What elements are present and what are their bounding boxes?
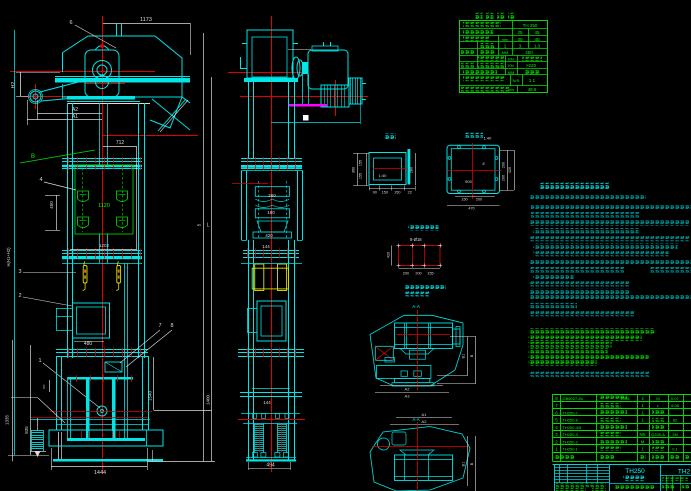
svg-text:GB8027-84: GB8027-84 (563, 396, 584, 401)
svg-text:9.08: 9.08 (671, 403, 680, 408)
svg-text:4: 4 (39, 177, 42, 183)
svg-text:B: B (31, 154, 35, 160)
svg-text:260: 260 (268, 193, 276, 198)
svg-text:NN: NN (639, 432, 645, 437)
svg-text:TH250.3: TH250.3 (563, 432, 579, 437)
svg-text:200: 200 (415, 272, 421, 276)
svg-text:A3: A3 (405, 393, 411, 398)
svg-text:8: 8 (482, 162, 484, 166)
svg-text:1.1: 1.1 (529, 78, 536, 83)
svg-text:TH250.2: TH250.2 (563, 439, 579, 444)
svg-text:1400: 1400 (205, 394, 210, 405)
svg-text:200: 200 (502, 162, 506, 168)
svg-text:180: 180 (267, 210, 275, 215)
svg-text:280: 280 (410, 167, 414, 173)
svg-text:M: M (656, 396, 659, 401)
svg-text:150: 150 (461, 198, 467, 202)
svg-text:470: 470 (468, 207, 474, 211)
svg-text:8-Ø18: 8-Ø18 (410, 237, 422, 242)
svg-text:H2: H2 (11, 82, 17, 89)
svg-text:6: 6 (69, 20, 72, 26)
svg-text:45: 45 (534, 30, 540, 35)
svg-text:420: 420 (508, 167, 512, 173)
svg-text:200: 200 (403, 272, 409, 276)
svg-text:B1: B1 (462, 354, 466, 359)
svg-text:A2: A2 (72, 107, 78, 113)
svg-text:TH250.6: TH250.6 (563, 418, 579, 423)
svg-text:1:40: 1:40 (379, 173, 388, 178)
svg-text:1173: 1173 (140, 17, 152, 23)
svg-text:MM: MM (502, 50, 509, 55)
svg-text:A1: A1 (422, 412, 428, 417)
svg-text:22: 22 (408, 191, 412, 195)
svg-text:144: 144 (263, 400, 271, 405)
svg-text:N/S: N/S (513, 78, 520, 83)
svg-text:L: L (207, 223, 210, 229)
svg-text:TH250: TH250 (625, 468, 645, 475)
svg-text:2M: 2M (672, 432, 678, 437)
svg-text:B: B (470, 354, 474, 357)
svg-text:1444: 1444 (94, 470, 106, 476)
svg-text:TH 250: TH 250 (523, 23, 538, 28)
svg-text:835: 835 (24, 426, 29, 434)
svg-text:40: 40 (534, 37, 540, 42)
svg-text:7: 7 (158, 323, 161, 329)
svg-text:900: 900 (465, 179, 472, 184)
svg-text:25: 25 (517, 30, 523, 35)
svg-text:A1: A1 (72, 114, 78, 120)
svg-text:1202: 1202 (99, 243, 110, 248)
svg-text:8: 8 (170, 323, 173, 329)
svg-text:MM: MM (508, 70, 515, 75)
svg-text:450: 450 (49, 201, 54, 209)
svg-text:TH2: TH2 (678, 469, 691, 476)
svg-text:m/s: m/s (508, 87, 514, 92)
svg-text:200: 200 (502, 175, 506, 181)
svg-text:B: B (470, 462, 474, 465)
svg-text:1335: 1335 (5, 414, 10, 425)
svg-text:2: 2 (18, 293, 21, 299)
svg-text:48.5: 48.5 (528, 87, 537, 92)
svg-text:1.3: 1.3 (534, 43, 541, 48)
svg-text:82: 82 (673, 418, 678, 423)
svg-text:1540: 1540 (148, 390, 153, 401)
svg-text:420: 420 (387, 252, 391, 258)
svg-text:155: 155 (359, 160, 363, 166)
svg-text:0.07: 0.07 (671, 396, 680, 401)
svg-text:>220: >220 (526, 63, 537, 68)
svg-text:mm: mm (502, 37, 509, 42)
svg-text:KN: KN (508, 57, 514, 62)
svg-text:1:40: 1:40 (484, 136, 493, 141)
svg-text:A-A: A-A (412, 304, 420, 309)
svg-text:B1: B1 (462, 462, 466, 467)
svg-text:1: 1 (38, 358, 41, 364)
svg-text:M: M (641, 439, 645, 444)
svg-text:150: 150 (382, 191, 388, 195)
svg-text:TH250.4/5: TH250.4/5 (563, 425, 582, 430)
svg-text:A2: A2 (422, 419, 428, 424)
svg-text:450: 450 (525, 50, 533, 55)
svg-text:A2: A2 (405, 387, 411, 392)
svg-text:420: 420 (265, 233, 273, 238)
svg-text:A-A: A-A (413, 417, 420, 422)
svg-text:H(H1+H2): H(H1+H2) (6, 247, 11, 267)
svg-text:144: 144 (262, 244, 270, 249)
svg-text:Q235-A: Q235-A (651, 432, 665, 437)
svg-text:TH250.7: TH250.7 (563, 410, 579, 415)
svg-text:0.1: 0.1 (672, 447, 678, 452)
svg-text:1120: 1120 (98, 203, 110, 209)
svg-text:150: 150 (394, 191, 400, 195)
svg-text:30: 30 (517, 37, 523, 42)
svg-text:200: 200 (476, 198, 482, 202)
svg-text:3: 3 (18, 269, 21, 275)
svg-text:712: 712 (116, 140, 125, 146)
svg-text:TH250.1: TH250.1 (563, 447, 579, 452)
svg-text:155: 155 (359, 173, 363, 179)
svg-text:2008: 2008 (621, 396, 631, 401)
svg-text:155: 155 (427, 272, 433, 276)
svg-text:360: 360 (352, 167, 356, 173)
svg-text:90: 90 (373, 191, 377, 195)
svg-text:KN: KN (508, 63, 514, 68)
svg-text:494: 494 (266, 463, 275, 469)
svg-text:480: 480 (84, 341, 93, 347)
